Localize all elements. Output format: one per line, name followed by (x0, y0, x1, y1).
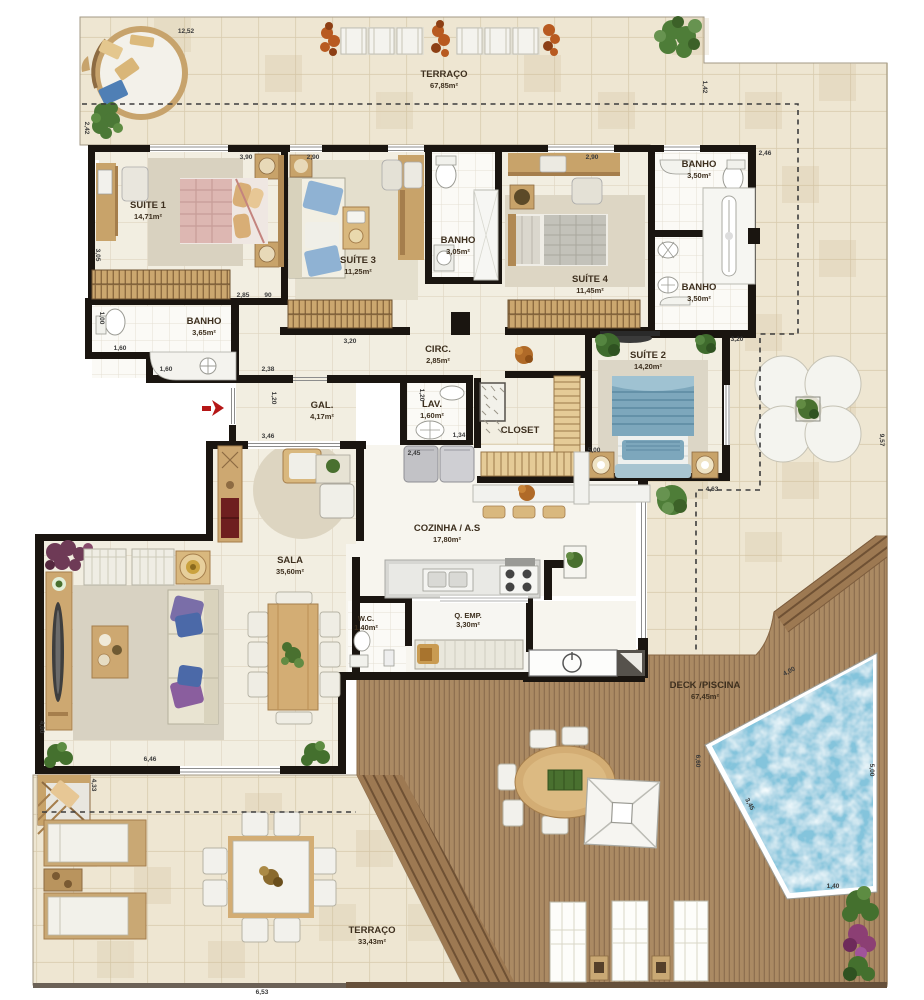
svg-text:2,46: 2,46 (759, 150, 772, 157)
svg-text:14,20m²: 14,20m² (634, 362, 662, 371)
svg-text:SUITE 1: SUITE 1 (130, 200, 167, 211)
svg-text:1,42: 1,42 (701, 81, 708, 94)
svg-text:67,85m²: 67,85m² (430, 81, 458, 90)
svg-text:COZINHA / A.S: COZINHA / A.S (414, 523, 480, 534)
svg-text:5,00: 5,00 (588, 447, 601, 454)
svg-text:Q. EMP.: Q. EMP. (454, 611, 481, 620)
svg-text:1,00: 1,00 (98, 312, 105, 325)
svg-text:DECK /PISCINA: DECK /PISCINA (670, 680, 741, 691)
svg-text:3,50m²: 3,50m² (687, 171, 711, 180)
svg-text:1,40m²: 1,40m² (354, 623, 378, 632)
svg-text:2,45: 2,45 (408, 450, 421, 457)
svg-text:1,60: 1,60 (114, 345, 127, 352)
svg-text:3,05: 3,05 (94, 249, 101, 262)
svg-text:1,20: 1,20 (270, 392, 277, 405)
svg-text:3,90: 3,90 (240, 154, 253, 161)
svg-text:4,17m²: 4,17m² (310, 412, 334, 421)
svg-text:5,00: 5,00 (868, 764, 875, 777)
svg-text:33,43m²: 33,43m² (358, 937, 386, 946)
svg-text:14,71m²: 14,71m² (134, 212, 162, 221)
svg-text:1,20: 1,20 (418, 389, 425, 402)
svg-text:GAL.: GAL. (311, 400, 334, 411)
svg-text:35,60m²: 35,60m² (276, 567, 304, 576)
svg-text:2,90: 2,90 (586, 154, 599, 161)
svg-text:3,65m²: 3,65m² (192, 328, 216, 337)
svg-text:11,45m²: 11,45m² (576, 286, 604, 295)
svg-text:1,34: 1,34 (453, 432, 466, 439)
svg-text:BANHO: BANHO (682, 282, 717, 293)
svg-text:SUÍTE 2: SUÍTE 2 (630, 350, 666, 361)
svg-text:1,60m²: 1,60m² (420, 411, 444, 420)
svg-text:4,63: 4,63 (706, 486, 719, 493)
svg-text:SUÍTE 3: SUÍTE 3 (340, 255, 376, 266)
svg-text:2,42: 2,42 (83, 122, 90, 135)
svg-text:BANHO: BANHO (682, 159, 717, 170)
svg-text:1,60: 1,60 (160, 366, 173, 373)
svg-text:CIRC.: CIRC. (425, 344, 451, 355)
svg-text:4,00: 4,00 (38, 721, 45, 734)
svg-text:TERRAÇO: TERRAÇO (349, 925, 396, 936)
svg-text:67,45m²: 67,45m² (691, 692, 719, 701)
svg-text:3,20: 3,20 (344, 338, 357, 345)
svg-text:BANHO: BANHO (187, 316, 222, 327)
svg-text:3,30m²: 3,30m² (456, 620, 480, 629)
svg-text:3,46: 3,46 (262, 433, 275, 440)
svg-text:6,46: 6,46 (144, 756, 157, 763)
svg-text:2,85m²: 2,85m² (426, 356, 450, 365)
svg-text:CLOSET: CLOSET (501, 425, 540, 436)
svg-text:SUÍTE 4: SUÍTE 4 (572, 274, 609, 285)
svg-text:12,52: 12,52 (178, 28, 195, 35)
svg-text:BANHO: BANHO (441, 235, 476, 246)
svg-text:2,90: 2,90 (307, 154, 320, 161)
svg-text:4,33: 4,33 (90, 779, 97, 792)
svg-text:11,25m²: 11,25m² (344, 267, 372, 276)
svg-text:1,40: 1,40 (827, 883, 840, 890)
svg-text:17,80m²: 17,80m² (433, 535, 461, 544)
svg-text:9,57: 9,57 (878, 434, 885, 447)
svg-text:6,53: 6,53 (256, 989, 269, 996)
svg-text:6,60: 6,60 (694, 755, 701, 768)
svg-text:2,85: 2,85 (237, 292, 250, 299)
svg-text:3,50m²: 3,50m² (687, 294, 711, 303)
svg-text:2,38: 2,38 (262, 366, 275, 373)
svg-text:TERRAÇO: TERRAÇO (421, 69, 468, 80)
svg-text:3,05m²: 3,05m² (446, 247, 470, 256)
svg-text:W.C.: W.C. (358, 614, 374, 623)
svg-text:3,20: 3,20 (731, 336, 744, 343)
svg-text:90: 90 (264, 292, 272, 299)
svg-text:SALA: SALA (277, 555, 303, 566)
